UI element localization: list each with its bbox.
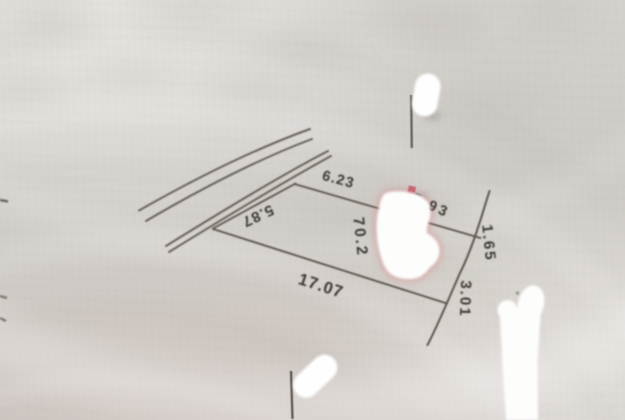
svg-text:17.07: 17.07 (296, 270, 346, 301)
svg-text:3.01: 3.01 (456, 280, 474, 318)
svg-text:1.65: 1.65 (478, 224, 499, 263)
svg-text:6.23: 6.23 (320, 168, 356, 192)
svg-text:70.2: 70.2 (349, 216, 370, 258)
